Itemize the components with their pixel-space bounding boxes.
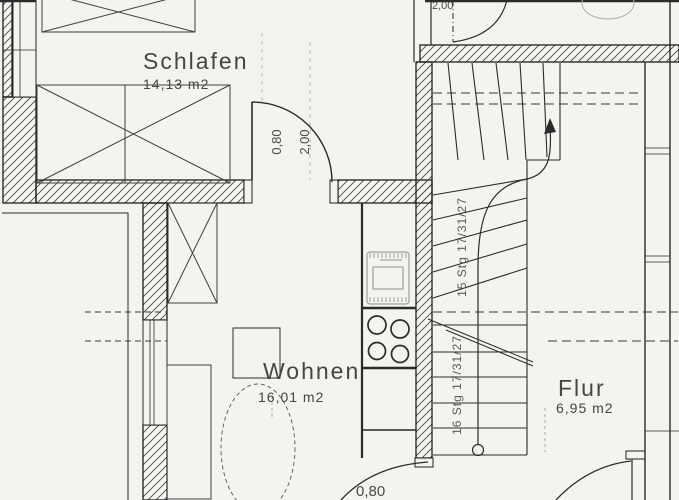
room-flur-area: 6,95 m2 bbox=[556, 400, 614, 416]
door-height-dim: 2,00 bbox=[297, 129, 312, 154]
wall-wohnen-west-upper bbox=[143, 203, 167, 320]
floor-plan-scan: Schlafen 14,13 m2 Wohnen 16,01 m2 Flur 6… bbox=[0, 0, 679, 500]
door-jamb-flur bbox=[626, 451, 645, 459]
wall-left-solid bbox=[3, 97, 36, 203]
stair-lower-label: 16 Stg 17/31/27 bbox=[450, 335, 464, 435]
window-wohnen bbox=[143, 320, 167, 425]
wall-top-right bbox=[420, 45, 679, 62]
room-wohnen-area: 16,01 m2 bbox=[258, 389, 324, 405]
wall-stair-west bbox=[416, 62, 432, 458]
top-door-height-dim: 2,00 bbox=[432, 0, 453, 12]
wall-wohnen-west-lower bbox=[143, 425, 167, 500]
floor-plan-svg: Schlafen 14,13 m2 Wohnen 16,01 m2 Flur 6… bbox=[0, 0, 679, 500]
room-wohnen-label: Wohnen bbox=[263, 358, 360, 384]
room-flur-label: Flur bbox=[558, 375, 606, 401]
room-schlafen-area: 14,13 m2 bbox=[143, 76, 209, 92]
door-width-dim: 0,80 bbox=[269, 129, 284, 154]
door-jamb-right bbox=[330, 180, 338, 203]
stair-upper-label: 15 Stg 17/31/27 bbox=[455, 197, 469, 297]
wall-left-outer-strip bbox=[3, 0, 12, 97]
paper-background bbox=[0, 0, 679, 500]
room-schlafen-label: Schlafen bbox=[143, 48, 249, 74]
door-jamb-left bbox=[244, 180, 252, 203]
wohnen-door-width-dim: 0,80 bbox=[356, 483, 385, 500]
